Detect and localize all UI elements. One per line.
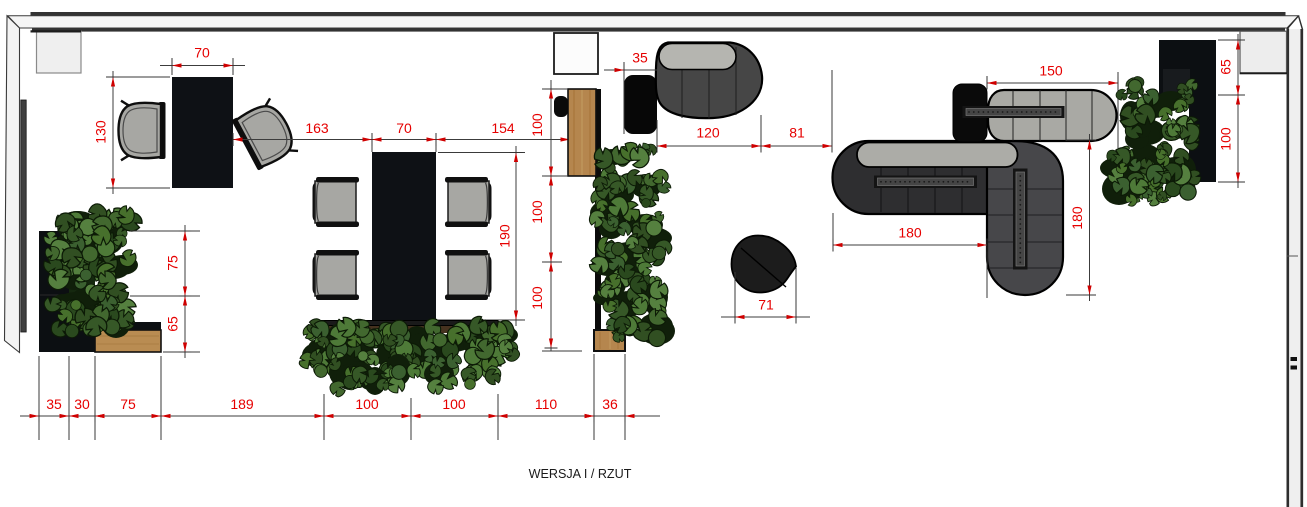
- svg-text:36: 36: [602, 396, 618, 412]
- svg-text:100: 100: [529, 286, 545, 310]
- svg-text:75: 75: [120, 396, 136, 412]
- svg-text:30: 30: [74, 396, 90, 412]
- svg-text:189: 189: [230, 396, 254, 412]
- svg-text:WERSJA I / RZUT: WERSJA I / RZUT: [529, 467, 632, 481]
- svg-text:100: 100: [1218, 127, 1234, 151]
- svg-text:180: 180: [1069, 206, 1085, 230]
- svg-text:81: 81: [789, 125, 805, 141]
- svg-text:110: 110: [535, 396, 558, 412]
- svg-text:70: 70: [396, 120, 412, 136]
- svg-text:100: 100: [355, 396, 379, 412]
- svg-text:190: 190: [497, 224, 513, 248]
- svg-text:70: 70: [194, 45, 210, 61]
- svg-text:180: 180: [898, 225, 922, 241]
- svg-text:35: 35: [632, 50, 648, 66]
- svg-text:100: 100: [529, 113, 545, 137]
- svg-text:65: 65: [1218, 59, 1234, 75]
- svg-text:100: 100: [442, 396, 466, 412]
- svg-text:71: 71: [758, 297, 774, 313]
- svg-text:154: 154: [491, 120, 515, 136]
- svg-text:130: 130: [93, 120, 109, 144]
- svg-text:163: 163: [305, 120, 329, 136]
- svg-text:65: 65: [165, 316, 181, 332]
- svg-text:100: 100: [529, 200, 545, 224]
- svg-text:120: 120: [696, 125, 720, 141]
- svg-text:75: 75: [165, 255, 181, 271]
- svg-text:150: 150: [1039, 63, 1063, 79]
- svg-text:35: 35: [46, 396, 62, 412]
